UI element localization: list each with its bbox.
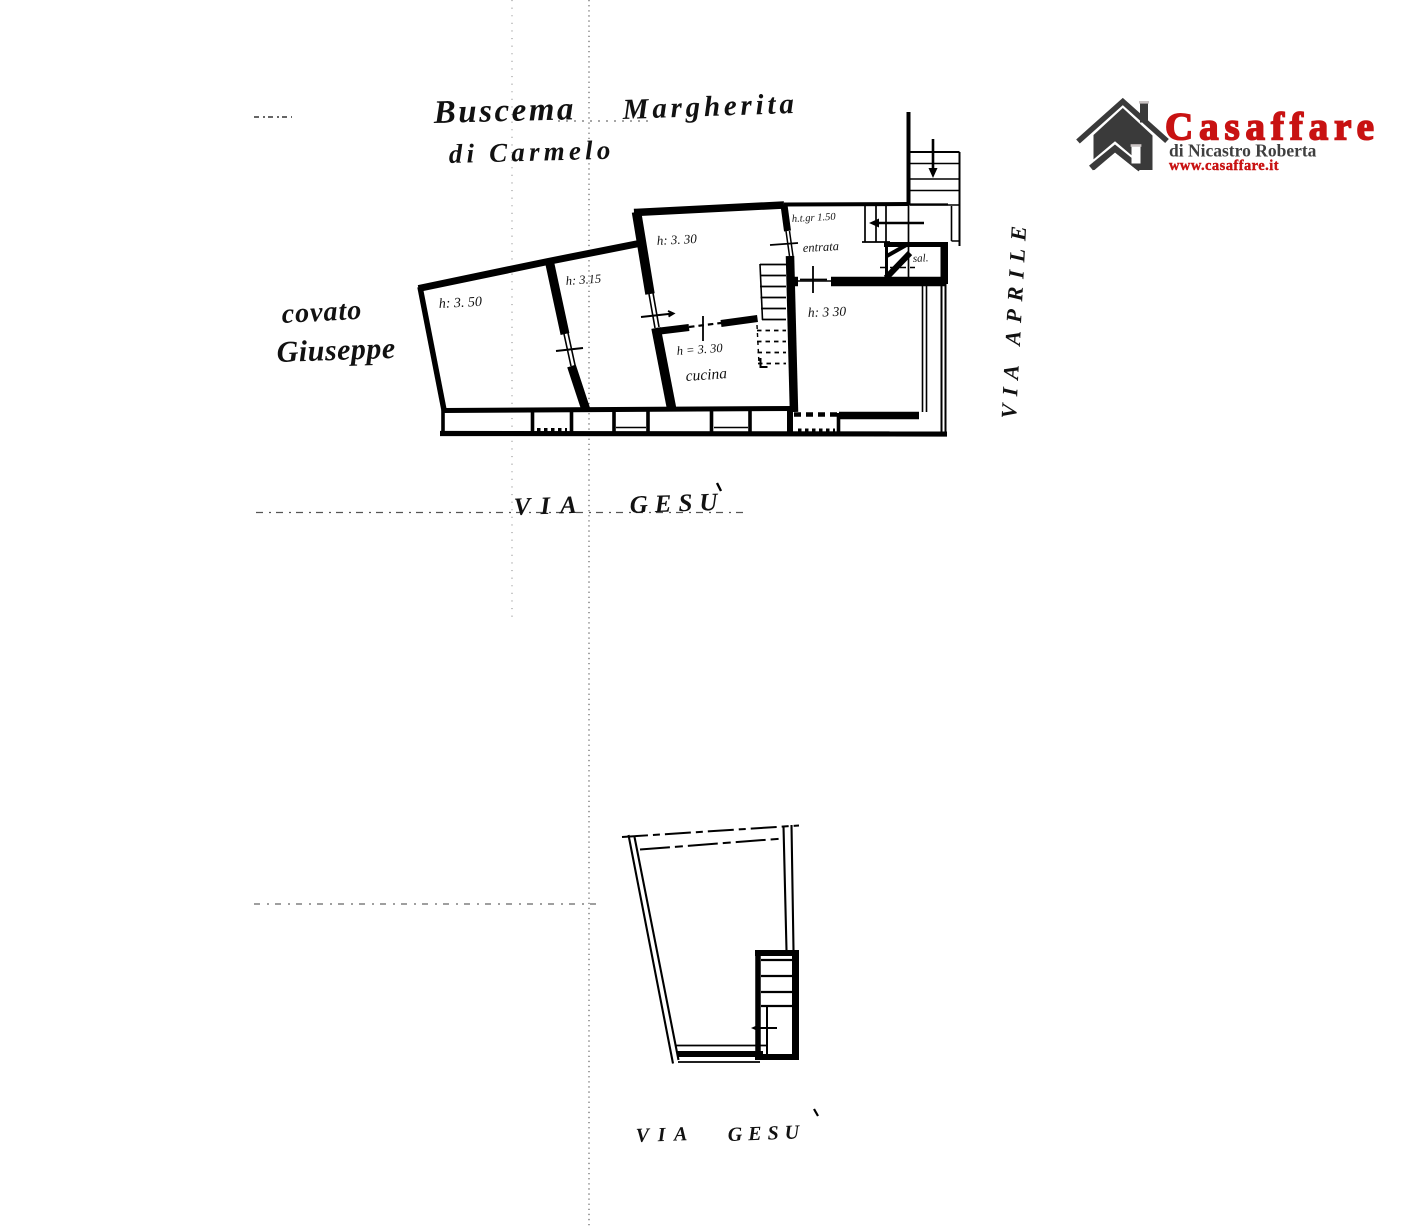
svg-text:covato: covato [281,295,363,330]
svg-text:entrata: entrata [802,239,839,255]
svg-text:Margherita: Margherita [621,88,798,126]
svg-text:Giuseppe: Giuseppe [276,332,396,369]
svg-text:h: 3 30: h: 3 30 [808,304,847,320]
svg-text:GESU: GESU [727,1121,805,1146]
svg-text:VIA: VIA [635,1123,696,1147]
svg-text:h: 3.15: h: 3.15 [565,272,601,288]
svg-text:cucina: cucina [685,365,728,385]
svg-text:h: 3. 30: h: 3. 30 [656,231,697,248]
svg-text:Buscema: Buscema [432,91,576,131]
svg-text:di Carmelo: di Carmelo [448,135,614,169]
svg-text:sal.: sal. [913,252,929,265]
svg-text:h.t.gr 1.50: h.t.gr 1.50 [792,212,837,225]
svg-text:www.casaffare.it: www.casaffare.it [1169,158,1279,174]
svg-text:GESU: GESU [629,489,725,519]
svg-text:h: 3. 50: h: 3. 50 [438,295,482,312]
svg-text:VIA: VIA [513,491,587,521]
